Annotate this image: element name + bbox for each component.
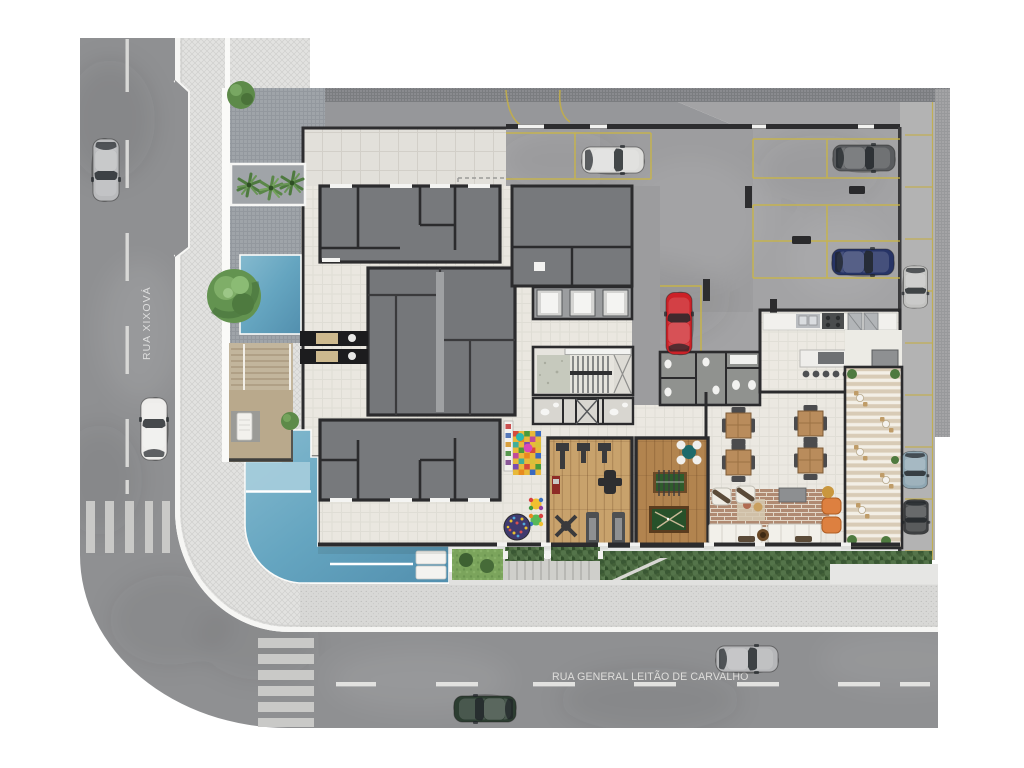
svg-text:RUA XIXOVÁ: RUA XIXOVÁ (140, 286, 153, 360)
svg-text:RUA GENERAL LEITÃO DE CARVALHO: RUA GENERAL LEITÃO DE CARVALHO (552, 670, 749, 683)
